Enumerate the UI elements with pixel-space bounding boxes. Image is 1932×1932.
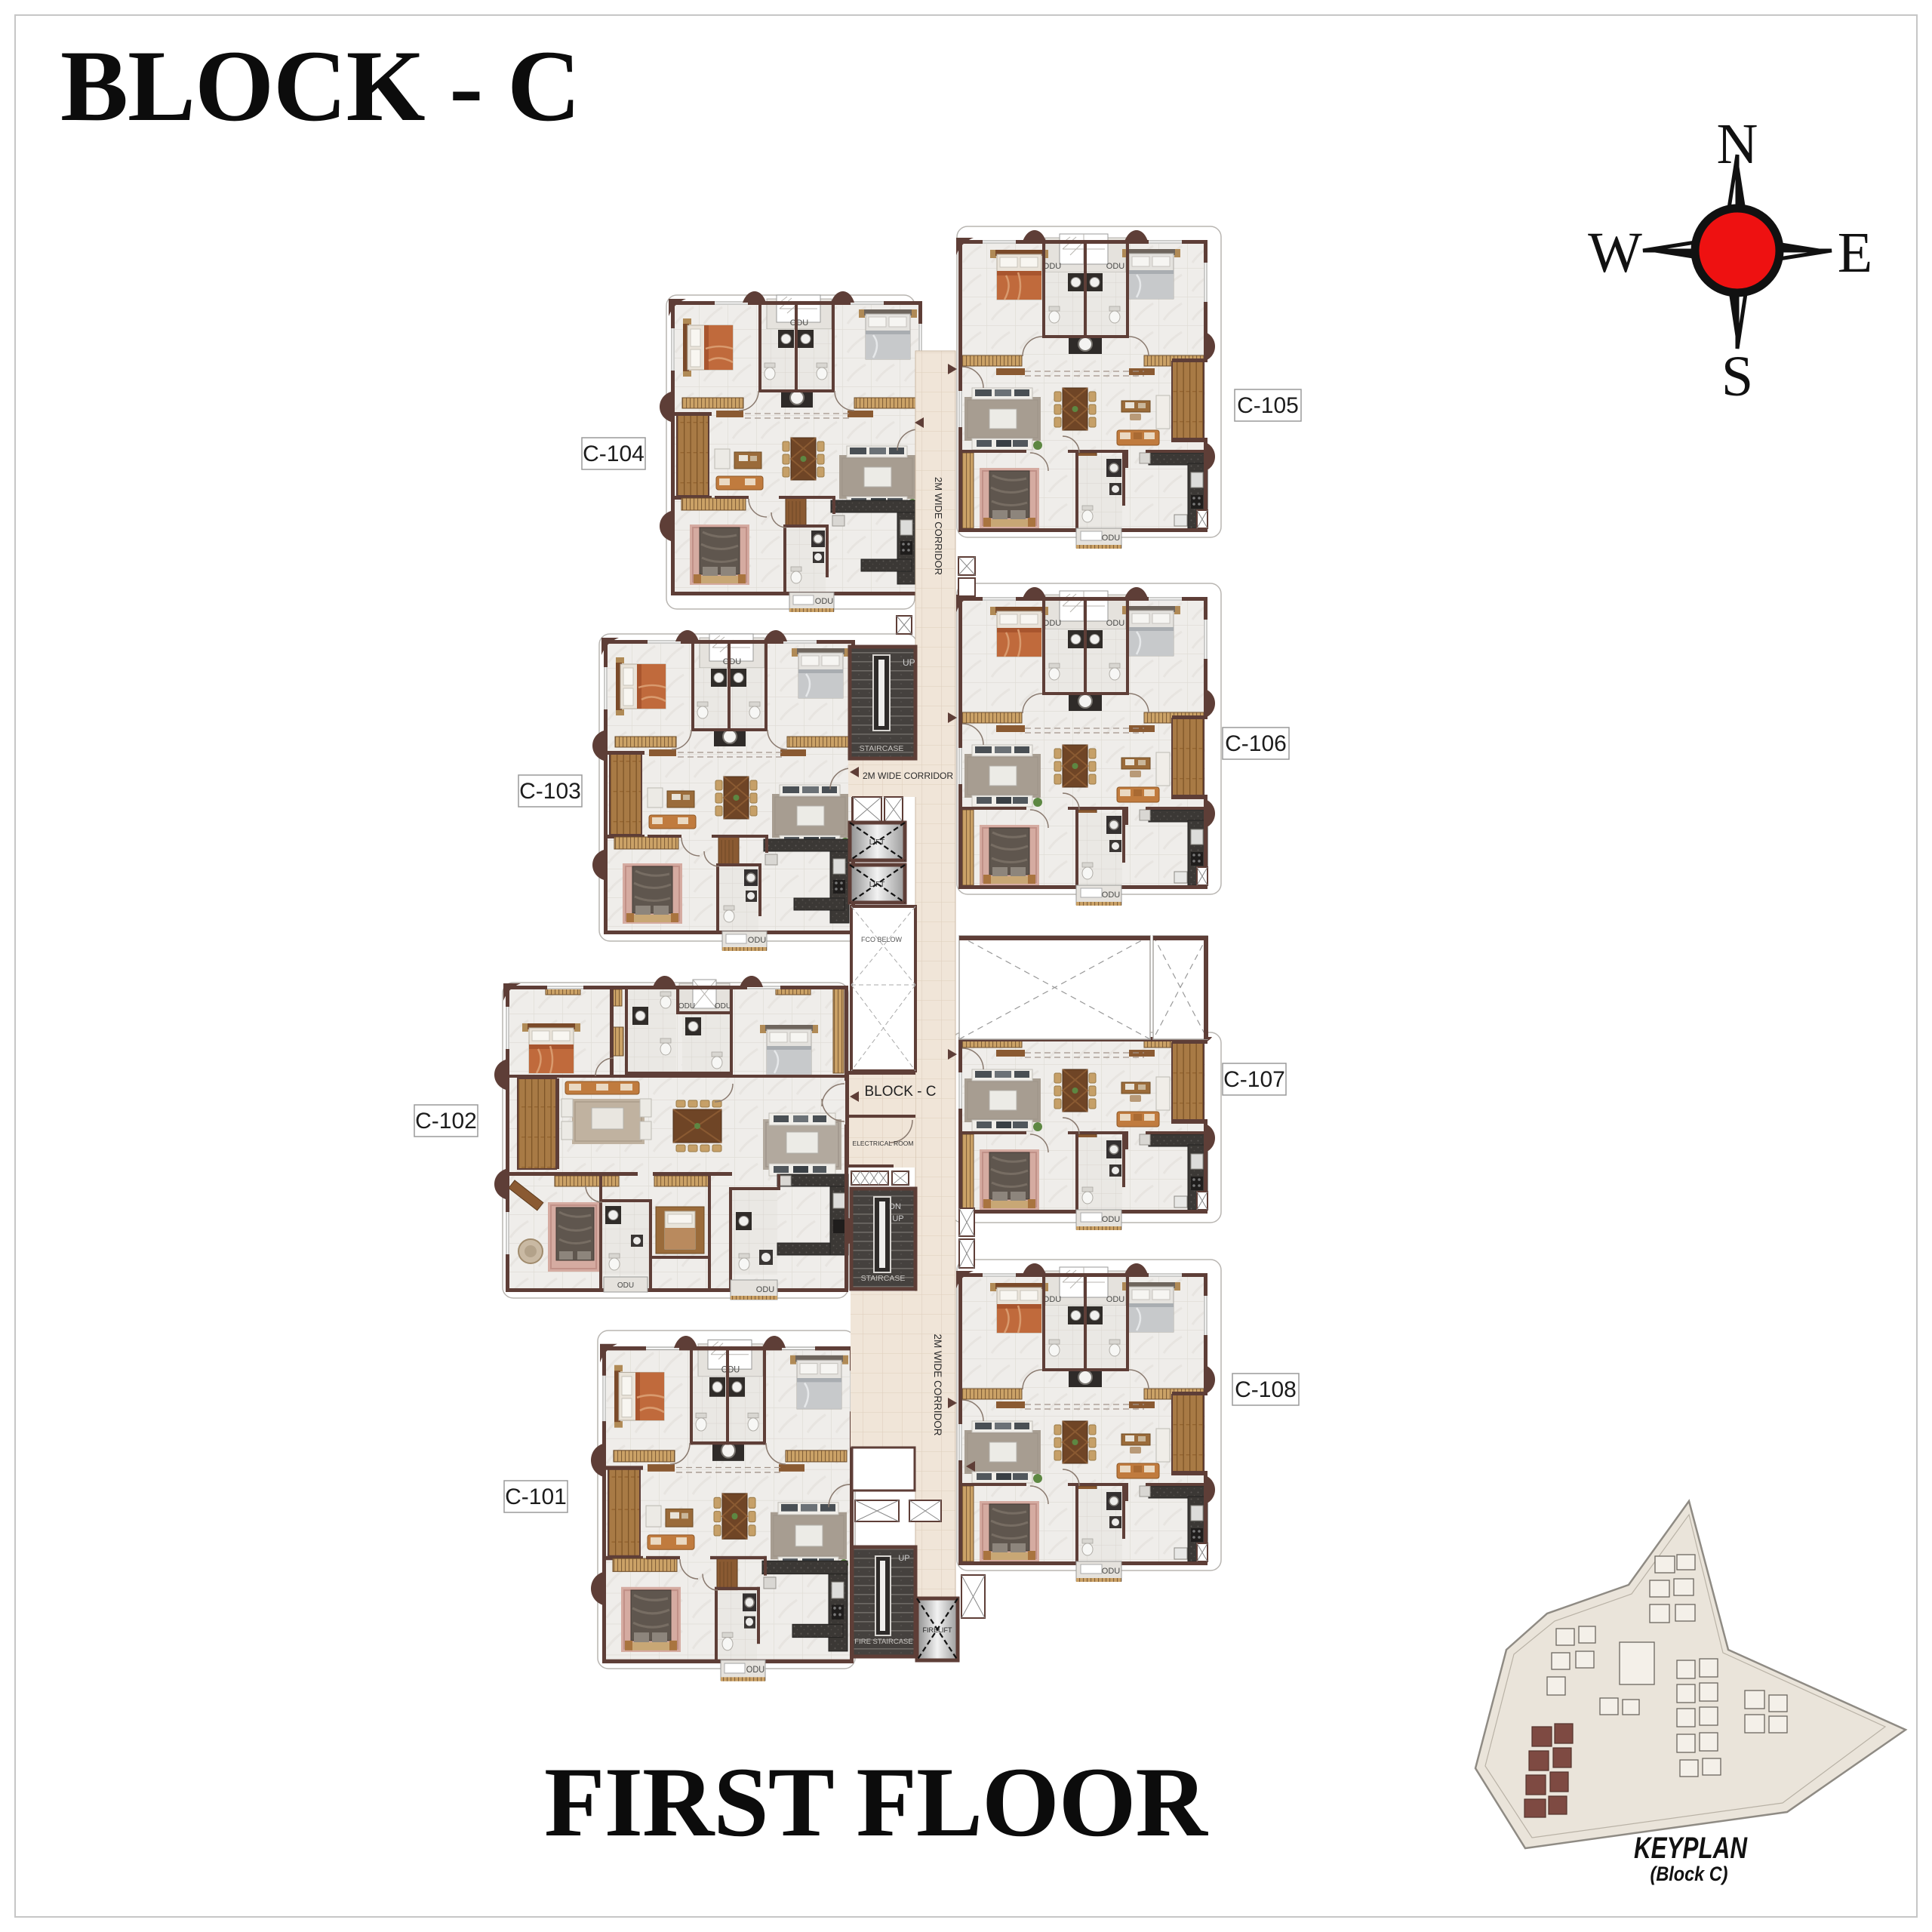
svg-text:STAIRCASE: STAIRCASE bbox=[861, 1274, 906, 1283]
svg-text:UP: UP bbox=[898, 1554, 909, 1563]
svg-text:2M WIDE CORRIDOR: 2M WIDE CORRIDOR bbox=[863, 771, 953, 781]
svg-text:FIRE STAIRCASE: FIRE STAIRCASE bbox=[854, 1638, 912, 1646]
svg-text:STAIRCASE: STAIRCASE bbox=[860, 744, 904, 753]
svg-text:BLOCK - C: BLOCK - C bbox=[60, 30, 580, 143]
svg-text:E: E bbox=[1838, 221, 1872, 285]
svg-text:W: W bbox=[1588, 221, 1642, 285]
svg-text:N: N bbox=[1717, 112, 1758, 176]
svg-text:C-101: C-101 bbox=[505, 1484, 567, 1509]
svg-text:S: S bbox=[1721, 345, 1753, 408]
svg-text:C-105: C-105 bbox=[1237, 393, 1299, 418]
svg-text:UP: UP bbox=[903, 657, 915, 668]
svg-text:FCO BELOW: FCO BELOW bbox=[861, 936, 903, 943]
svg-text:BLOCK - C: BLOCK - C bbox=[864, 1084, 936, 1100]
svg-text:FIRELIFT: FIRELIFT bbox=[922, 1626, 952, 1634]
svg-text:C-104: C-104 bbox=[583, 441, 645, 466]
svg-text:LIFT: LIFT bbox=[869, 881, 885, 889]
svg-text:UP: UP bbox=[892, 1214, 903, 1223]
svg-text:C-102: C-102 bbox=[415, 1109, 477, 1134]
svg-text:DN: DN bbox=[889, 1202, 901, 1211]
svg-text:ODU: ODU bbox=[715, 1002, 731, 1011]
svg-text:ELECTRICAL ROOM: ELECTRICAL ROOM bbox=[853, 1140, 914, 1147]
svg-text:ODU: ODU bbox=[617, 1281, 634, 1290]
svg-text:C-103: C-103 bbox=[519, 779, 581, 804]
svg-text:FIRST FLOOR: FIRST FLOOR bbox=[544, 1746, 1208, 1857]
svg-text:C-107: C-107 bbox=[1223, 1067, 1285, 1092]
svg-text:2M WIDE CORRIDOR: 2M WIDE CORRIDOR bbox=[933, 477, 944, 575]
svg-text:ODU: ODU bbox=[756, 1285, 775, 1294]
svg-text:ODU: ODU bbox=[678, 1002, 695, 1011]
svg-text:LIFT: LIFT bbox=[869, 838, 885, 847]
svg-text:(Block C): (Block C) bbox=[1651, 1863, 1728, 1885]
svg-text:KEYPLAN: KEYPLAN bbox=[1634, 1832, 1748, 1865]
svg-text:C-108: C-108 bbox=[1235, 1377, 1297, 1402]
svg-text:C-106: C-106 bbox=[1225, 731, 1287, 756]
svg-text:2M WIDE CORRIDOR: 2M WIDE CORRIDOR bbox=[932, 1334, 943, 1436]
